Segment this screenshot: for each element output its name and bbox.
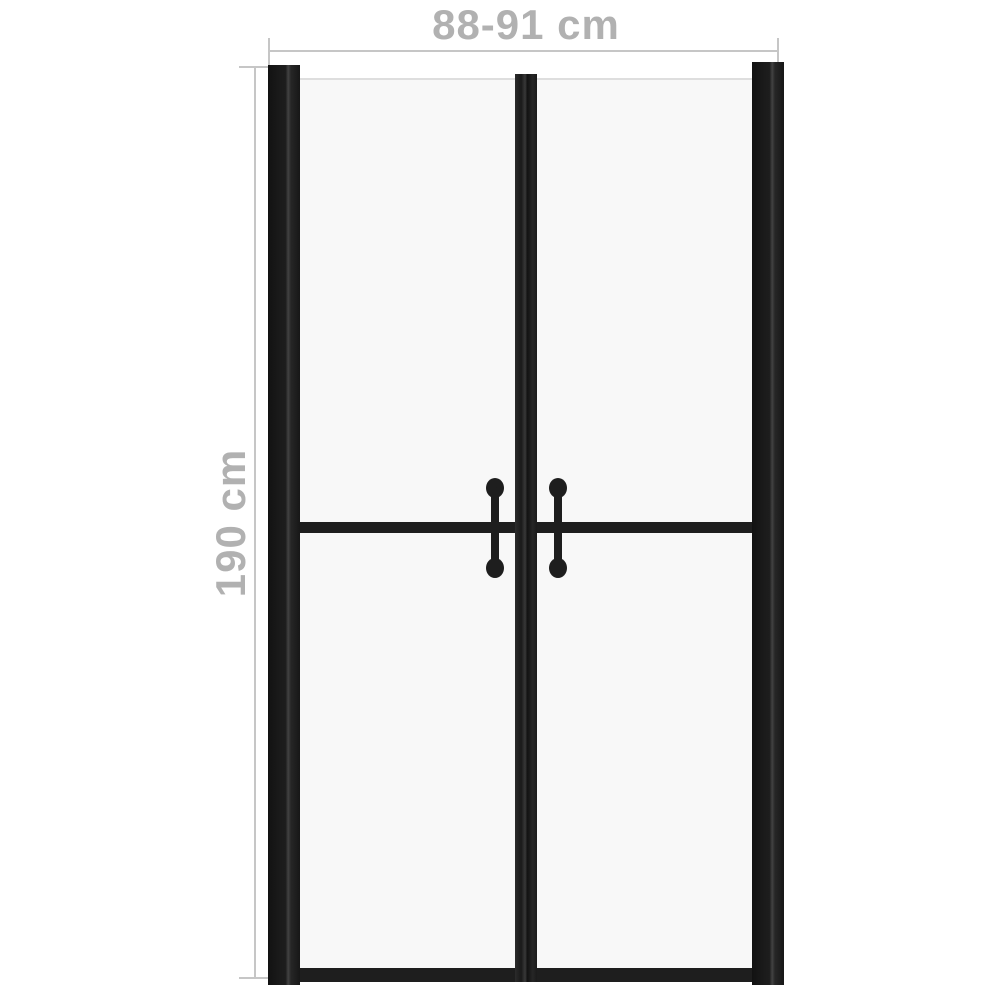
handle-stem bbox=[554, 487, 562, 569]
frame-post-left bbox=[268, 65, 300, 985]
height-dimension-tick-top bbox=[239, 66, 270, 68]
handle-knob-bottom bbox=[549, 558, 567, 578]
shower-door-dimension-diagram: 88-91 cm 190 cm bbox=[0, 0, 1000, 1000]
width-dimension-label: 88-91 cm bbox=[276, 1, 776, 49]
height-dimension-tick-bottom bbox=[239, 977, 270, 979]
width-dimension-tick-left bbox=[268, 38, 270, 67]
handle-stem bbox=[491, 487, 499, 569]
width-dimension-tick-right bbox=[777, 38, 779, 65]
height-dimension-label: 190 cm bbox=[207, 449, 255, 597]
door-handle-right bbox=[549, 478, 567, 578]
height-dimension-line bbox=[254, 66, 256, 979]
frame-post-right bbox=[752, 62, 784, 985]
handle-knob-bottom bbox=[486, 558, 504, 578]
center-mullion bbox=[515, 74, 537, 982]
width-dimension-line bbox=[269, 50, 779, 52]
door-handle-left bbox=[486, 478, 504, 578]
